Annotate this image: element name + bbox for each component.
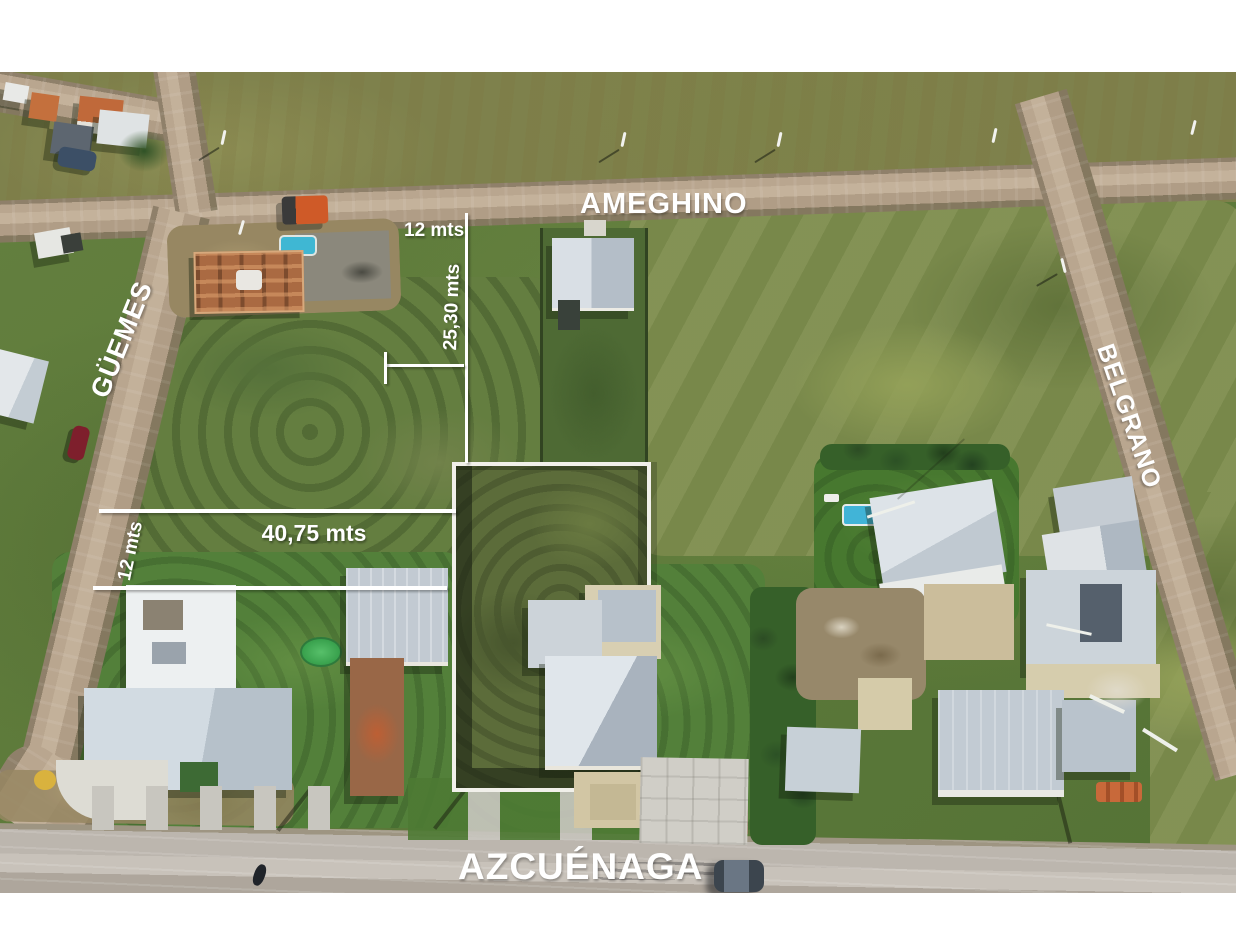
garage-east: [785, 727, 861, 794]
car-dark-azcuenaga: [714, 860, 764, 892]
bricks-orange-east: [1096, 782, 1142, 802]
real-estate-aerial-listing: AMEGHINO GÜEMES BELGRANO AZCUÉNAGA 12 mt…: [0, 0, 1236, 950]
house-orange-cabin-1: [28, 92, 59, 122]
car-red-guemes: [66, 424, 91, 461]
house-white-roof-left-edge: [0, 348, 49, 423]
house-mid-cream-roofpanel: [598, 590, 656, 642]
walkway-strips-sw: [92, 786, 336, 830]
house-narrow-lot-porch: [558, 300, 580, 330]
lounger-east: [824, 494, 839, 502]
construction-material-bags: [236, 270, 262, 290]
photo-area: AMEGHINO GÜEMES BELGRANO AZCUÉNAGA 12 mt…: [0, 72, 1236, 893]
house-sw-white-skylight-1: [143, 600, 183, 630]
pole-shadow-verge-4: [1056, 792, 1072, 843]
measure-label-depth-top: 25,30 mts: [439, 244, 465, 370]
path-front-narrow-lot: [584, 220, 606, 236]
house-east-south-roof: [938, 690, 1064, 797]
measure-tick-left: [384, 352, 387, 384]
pavilion-east: [858, 678, 912, 730]
structure-brick-sw: [350, 658, 404, 796]
house-mid-court-patio: [590, 784, 636, 820]
measure-line-long-top: [99, 509, 456, 513]
house-trailer-small: [3, 82, 30, 104]
house-sw-white-skylight-2: [152, 642, 186, 664]
house-sw-gray-roof: [346, 568, 448, 666]
driveway-concrete-mid: [639, 757, 748, 845]
measure-line-long-bottom: [93, 586, 447, 590]
pool-green-turtle: [300, 637, 342, 667]
measure-label-front-top: 12 mts: [404, 220, 464, 242]
hedge-east-top: [820, 444, 1010, 470]
object-yellow-sw: [34, 770, 56, 790]
street-label-ameghino: AMEGHINO: [580, 188, 748, 221]
street-label-azcuenaga: AZCUÉNAGA: [458, 846, 703, 888]
house-mid-gable-roof: [545, 656, 657, 770]
tree-topleft: [118, 130, 170, 172]
shed-dark-left: [61, 232, 84, 253]
ground-tan-east: [924, 584, 1014, 660]
machine-orange-ameghino: [282, 195, 329, 225]
measure-label-length-side: 40,75 mts: [234, 520, 394, 547]
